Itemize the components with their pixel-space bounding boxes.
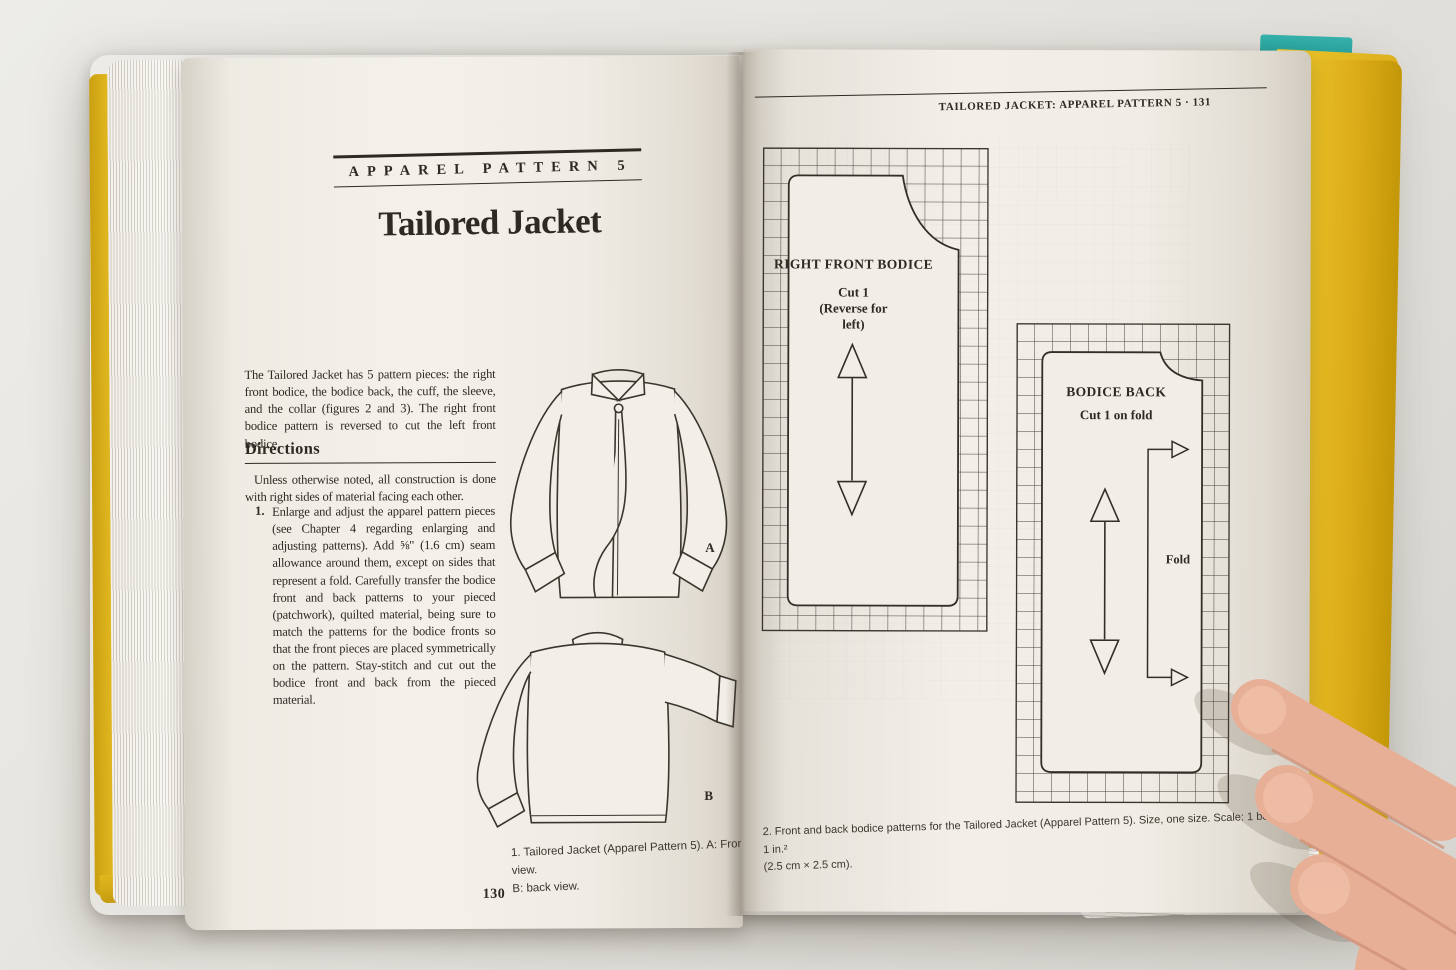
left-page: APPAREL PATTERN 5 Tailored Jacket The Ta… [181,56,743,930]
running-head-text: TAILORED JACKET: APPAREL PATTERN 5 · 131 [755,88,1267,116]
chapter-kicker: APPAREL PATTERN 5 [333,148,642,187]
hand-holding-page [1136,590,1456,970]
figure-b-label: B [704,788,713,804]
front-bodice-reverse-1: (Reverse for [819,300,887,315]
front-bodice-pattern-diagram: RIGHT FRONT BODICE Cut 1 (Reverse for le… [762,147,989,632]
figure-a-label: A [705,540,714,556]
front-bodice-title: RIGHT FRONT BODICE [774,256,933,271]
back-bodice-title: BODICE BACK [1066,384,1166,399]
jacket-back-illustration [457,625,738,836]
jacket-front-illustration [497,359,738,620]
figure-1-caption: 1. Tailored Jacket (Apparel Pattern 5). … [511,835,763,898]
directions-intro: Unless otherwise noted, all construction… [245,471,496,506]
back-bodice-subtitle: Cut 1 on fold [1080,407,1153,422]
directions-heading: Directions [245,438,496,464]
page-title: Tailored Jacket [280,200,701,246]
front-bodice-cut: Cut 1 [838,285,869,300]
front-bodice-outline [788,175,959,605]
jacket-front-lines [510,369,727,597]
fold-label: Fold [1166,552,1190,566]
step-number: 1. [255,504,273,710]
running-head: TAILORED JACKET: APPAREL PATTERN 5 · 131 [755,87,1267,116]
page-number-130: 130 [483,887,506,903]
jacket-back-lines [477,632,737,827]
photo-open-pattern-book: APPAREL PATTERN 5 Tailored Jacket The Ta… [0,0,1456,970]
book-gutter-shadow [726,52,760,916]
front-bodice-reverse-2: left) [842,317,864,332]
